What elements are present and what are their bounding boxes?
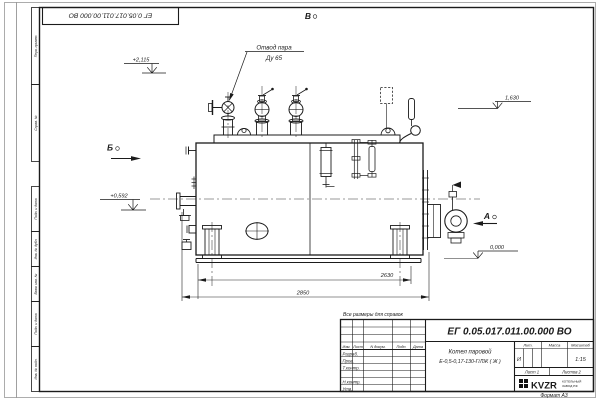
elevation-valves-label: +2,115 — [133, 58, 151, 64]
sheet-frame — [5, 3, 596, 398]
view-a: А — [473, 211, 497, 226]
steam-outlet-label-2: Ду 65 — [265, 55, 283, 62]
burner-assembly — [422, 170, 467, 250]
margin-label-inv-podl: Инв. № подл. — [34, 358, 38, 379]
tb-scale-value: 1:15 — [575, 357, 587, 363]
tb-header-n-dokum: N докум. — [370, 345, 385, 349]
top-doc-number: ЕГ 0.05.017.011.00.000 ВО — [68, 11, 152, 18]
steam-valve — [209, 97, 235, 135]
tb-header-izm: Изм. — [342, 345, 350, 349]
view-v-label: В — [305, 11, 311, 21]
view-b: Б — [107, 143, 141, 161]
view-b-label: Б — [107, 143, 113, 153]
view-a-label: А — [483, 211, 490, 221]
elevation-zero-label: 0,000 — [490, 245, 505, 251]
format-label: Формат А3 — [540, 393, 568, 399]
tb-sheet-value: Лист 1 — [524, 369, 539, 374]
tb-row-n-kontr: Н.контр. — [343, 379, 361, 384]
safety-valve-1 — [255, 88, 274, 135]
dim-2850: 2850 — [296, 291, 310, 297]
steam-outlet-label-1: Отвод пара — [256, 45, 292, 52]
lifting-lugs — [238, 128, 396, 135]
kvzr-sub-line1: КОТЕЛЬНЫЙ — [562, 380, 581, 384]
view-v: В — [305, 11, 317, 21]
margin-label-perv-primen: Перв. примен. — [34, 35, 38, 58]
tb-row-razrab: Разраб. — [343, 351, 359, 356]
kvzr-sub-line2: ЗАВОД РФ — [562, 384, 578, 388]
tb-header-lit: Лит. — [522, 343, 532, 348]
left-wall-fittings — [177, 147, 197, 250]
tb-lit-value: И — [517, 357, 521, 363]
tb-header-list: Лист — [352, 345, 363, 349]
tb-doc-number: ЕГ 0.05.017.011.00.000 ВО — [447, 327, 571, 338]
water-column — [320, 143, 335, 188]
reference-note: Все размеры для справок — [343, 312, 404, 318]
tb-header-podp: Подп. — [396, 345, 406, 349]
elevation-left-pipe-label: +0,592 — [110, 194, 128, 200]
manhole — [245, 222, 269, 240]
kvzr-logo-icon — [519, 379, 528, 388]
tb-row-t-kontr: Т.контр. — [343, 365, 360, 370]
safety-valve-2 — [289, 88, 308, 135]
tb-header-masshtab: Масштаб — [571, 343, 590, 348]
tb-row-utv: Утв. — [343, 386, 353, 391]
drawing-canvas: Перв. примен. Справ. № Подп. и дата Инв.… — [0, 0, 600, 400]
tb-header-massa: Масса — [549, 343, 562, 348]
margin-label-podp-data-2: Подп. и дата — [34, 313, 38, 334]
centerlines — [150, 86, 480, 287]
margin-label-inv-dubl: Инв. № дубл. — [34, 239, 38, 260]
kvzr-logo-text: KVZR — [531, 381, 557, 392]
elevation-right-label: 1,630 — [505, 96, 520, 102]
elevation-marks — [100, 64, 531, 259]
tb-row-prov: Пров. — [343, 358, 354, 363]
tb-product-name: Котел паровой — [448, 349, 492, 356]
company-logo: KVZR КОТЕЛЬНЫЙ ЗАВОД РФ — [519, 379, 581, 392]
top-doc-stamp: ЕГ 0.05.017.011.00.000 ВО — [43, 8, 179, 25]
tb-product-model: Е-0,5-0,17-130-Г/ЛЖ ( Ж ) — [439, 359, 501, 365]
water-level-gauges — [352, 140, 376, 180]
margin-label-sprav-no: Справ. № — [34, 115, 38, 131]
tb-header-data: Дата — [412, 345, 423, 349]
dim-2630: 2630 — [380, 273, 394, 279]
drawing-sheet: Перв. примен. Справ. № Подп. и дата Инв.… — [0, 0, 600, 400]
tb-sheets-value: Листов 2 — [561, 369, 581, 374]
margin-label-podp-data-1: Подп. и дата — [34, 198, 38, 219]
margin-label-vzam-inv: Взам. инв. № — [34, 273, 38, 294]
